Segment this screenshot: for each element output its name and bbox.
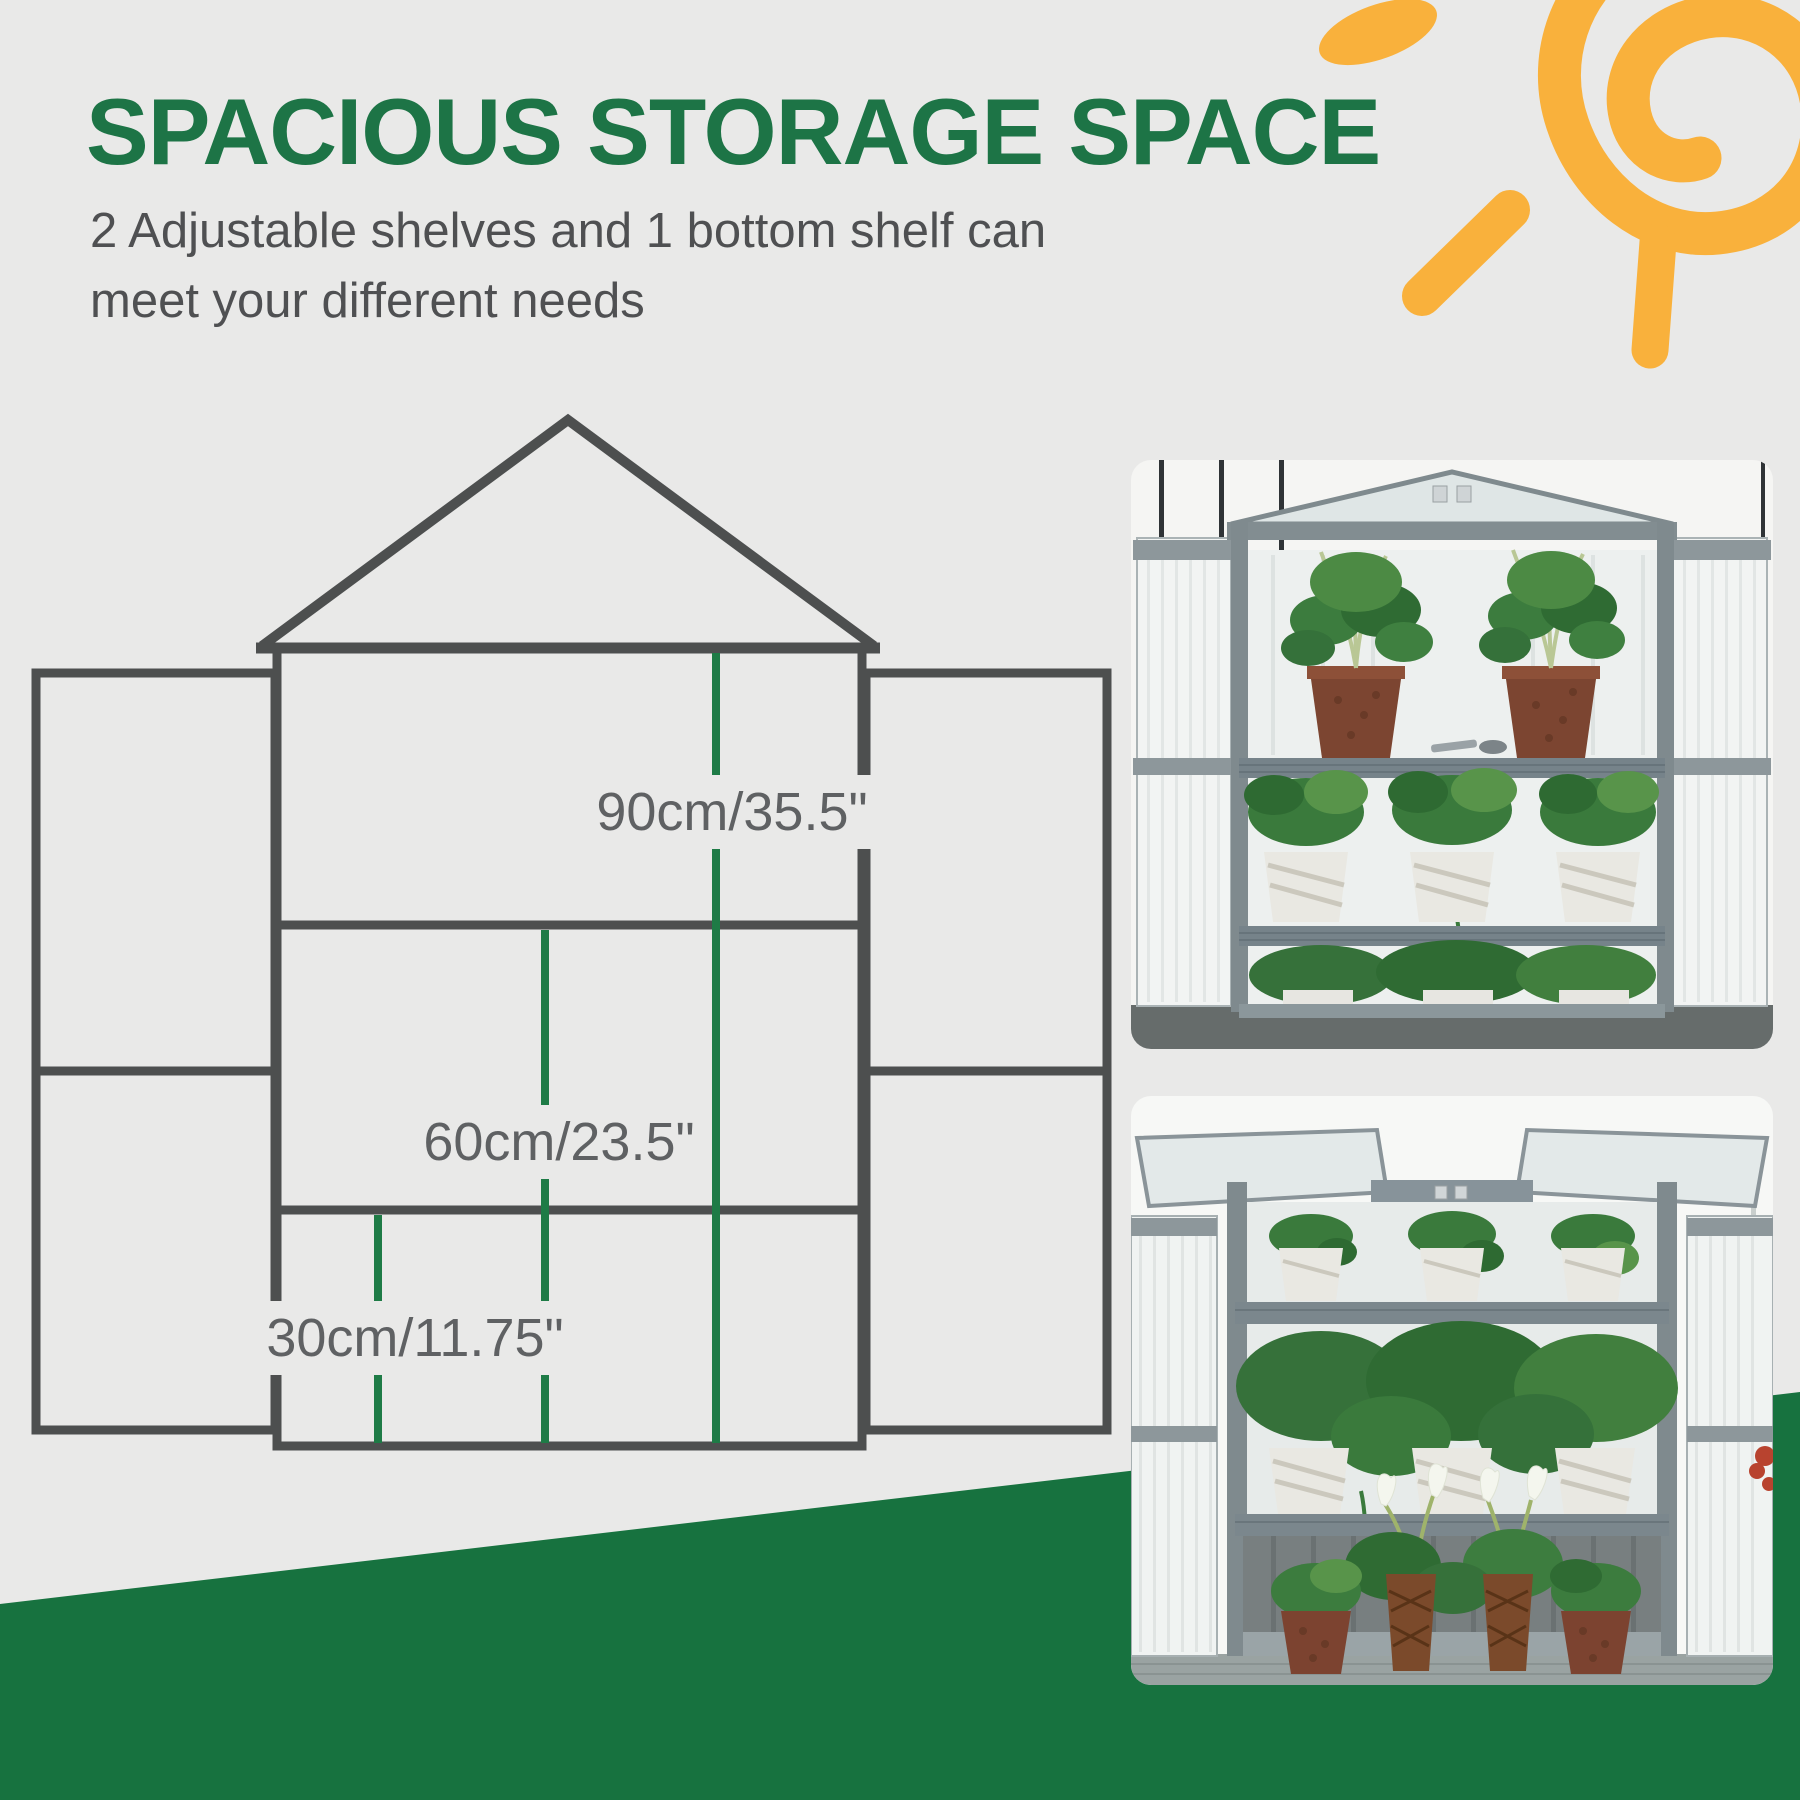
diagram-roof	[262, 420, 874, 646]
product-photo-bottom-shelf	[1131, 1096, 1773, 1685]
photo-top-illustration	[1131, 460, 1773, 1049]
photo-bottom-illustration	[1131, 1096, 1773, 1685]
product-photo-shelves	[1131, 460, 1773, 1049]
sun-icon	[1311, 0, 1800, 350]
diagram-left-door	[36, 673, 275, 1430]
infographic-page: SPACIOUS STORAGE SPACE 2 Adjustable shel…	[0, 0, 1800, 1800]
sun-ray-left	[1422, 210, 1510, 296]
sun-spiral	[1559, 0, 1800, 234]
dimension-lines	[378, 653, 716, 1443]
sun-ray-bottom	[1650, 242, 1658, 350]
diagram-right-door	[866, 673, 1107, 1430]
greenhouse-outline-diagram	[36, 420, 1107, 1446]
diagram-body	[277, 648, 862, 1446]
sun-ray-top	[1311, 0, 1446, 79]
